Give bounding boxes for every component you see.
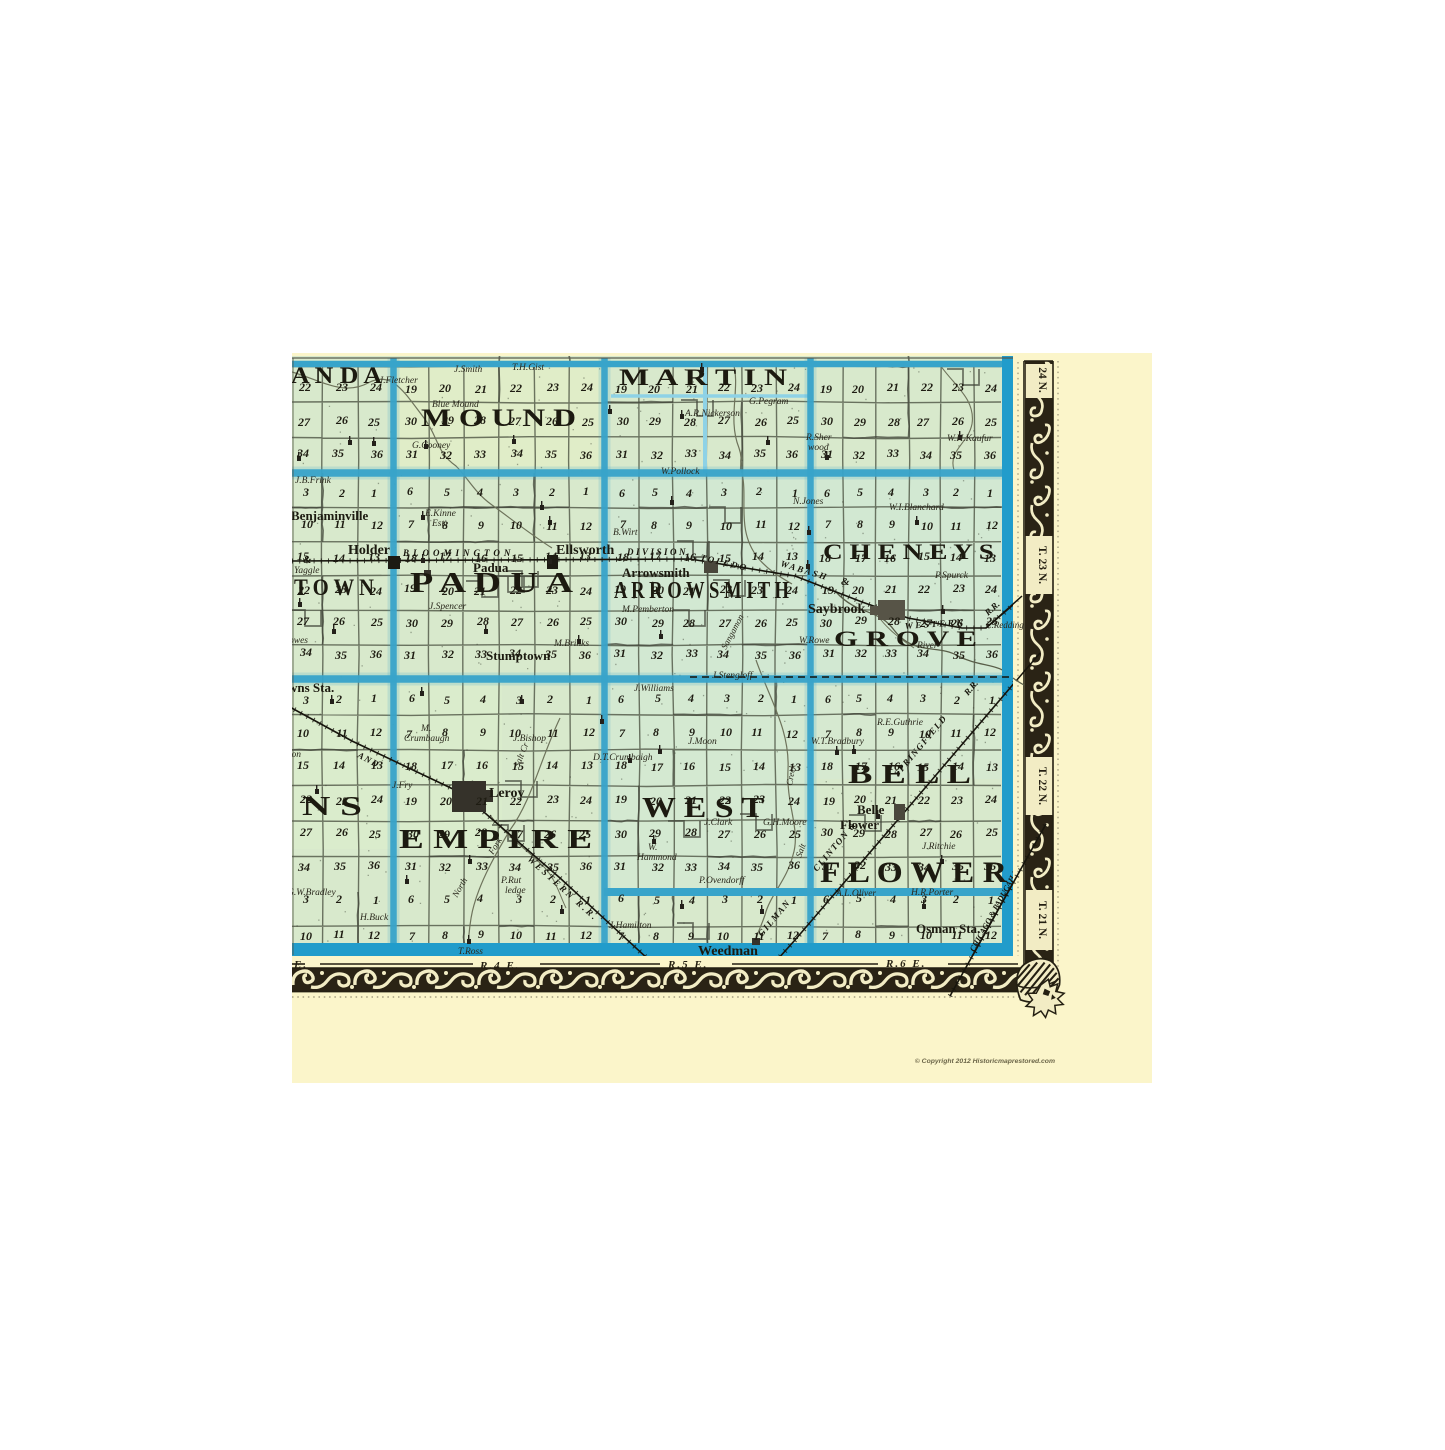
svg-text:M A R T I N: M A R T I N bbox=[619, 365, 788, 390]
svg-text:36: 36 bbox=[367, 858, 380, 872]
svg-text:30: 30 bbox=[819, 616, 832, 630]
svg-text:W.H.Kaufur: W.H.Kaufur bbox=[947, 433, 993, 444]
svg-text:22: 22 bbox=[920, 380, 933, 394]
svg-text:3: 3 bbox=[720, 485, 727, 499]
svg-text:28: 28 bbox=[884, 827, 897, 841]
svg-text:7: 7 bbox=[618, 929, 625, 943]
svg-text:J.Spencer: J.Spencer bbox=[429, 602, 466, 612]
svg-text:J.Smith: J.Smith bbox=[454, 365, 482, 375]
svg-text:&: & bbox=[841, 576, 850, 588]
svg-text:30: 30 bbox=[820, 414, 833, 428]
svg-text:3: 3 bbox=[919, 691, 926, 705]
svg-text:20: 20 bbox=[851, 583, 864, 597]
svg-text:9: 9 bbox=[889, 517, 895, 531]
svg-text:7: 7 bbox=[822, 929, 829, 943]
svg-text:2: 2 bbox=[756, 892, 763, 906]
svg-text:29: 29 bbox=[440, 616, 453, 630]
svg-text:P.Spurck: P.Spurck bbox=[934, 571, 969, 581]
svg-text:5: 5 bbox=[444, 485, 450, 499]
svg-text:3: 3 bbox=[302, 485, 309, 499]
svg-text:33: 33 bbox=[685, 646, 698, 660]
svg-text:31: 31 bbox=[615, 447, 628, 461]
svg-text:12: 12 bbox=[368, 928, 380, 942]
svg-text:26: 26 bbox=[754, 415, 767, 429]
svg-text:33: 33 bbox=[684, 446, 697, 460]
svg-text:11: 11 bbox=[336, 726, 347, 740]
svg-text:30: 30 bbox=[820, 825, 833, 839]
svg-text:DIVISION: DIVISION bbox=[626, 547, 688, 557]
svg-text:J.B.Frink: J.B.Frink bbox=[295, 476, 332, 486]
svg-text:33: 33 bbox=[886, 446, 899, 460]
svg-text:8: 8 bbox=[653, 725, 659, 739]
svg-text:25: 25 bbox=[984, 415, 997, 429]
svg-text:5: 5 bbox=[856, 691, 862, 705]
svg-text:21: 21 bbox=[884, 793, 897, 807]
svg-text:28: 28 bbox=[682, 616, 695, 630]
svg-text:25: 25 bbox=[985, 825, 998, 839]
svg-text:36: 36 bbox=[579, 448, 592, 462]
svg-text:23: 23 bbox=[950, 793, 963, 807]
svg-text:30: 30 bbox=[614, 614, 627, 628]
svg-text:36: 36 bbox=[370, 447, 383, 461]
svg-text:12: 12 bbox=[788, 519, 800, 533]
svg-text:11: 11 bbox=[547, 726, 558, 740]
svg-text:24: 24 bbox=[984, 381, 997, 395]
svg-text:9: 9 bbox=[688, 929, 694, 943]
svg-text:35: 35 bbox=[334, 648, 347, 662]
svg-text:Saybrook: Saybrook bbox=[808, 602, 866, 617]
svg-text:36: 36 bbox=[578, 648, 591, 662]
svg-text:16: 16 bbox=[683, 759, 695, 773]
svg-text:W.I.Blanchard: W.I.Blanchard bbox=[889, 503, 944, 513]
svg-text:34: 34 bbox=[717, 859, 730, 873]
svg-text:4: 4 bbox=[687, 691, 694, 705]
svg-text:26: 26 bbox=[335, 413, 348, 427]
svg-text:8: 8 bbox=[653, 929, 659, 943]
svg-text:T. 21 N.: T. 21 N. bbox=[1036, 901, 1048, 939]
svg-text:11: 11 bbox=[546, 519, 557, 533]
svg-text:36: 36 bbox=[785, 447, 798, 461]
svg-text:12: 12 bbox=[370, 725, 382, 739]
svg-text:5: 5 bbox=[652, 485, 658, 499]
svg-text:4: 4 bbox=[886, 691, 893, 705]
svg-text:J.Moon: J.Moon bbox=[688, 737, 717, 747]
svg-text:2: 2 bbox=[335, 892, 342, 906]
svg-text:34: 34 bbox=[510, 446, 523, 460]
svg-text:27: 27 bbox=[717, 827, 731, 841]
svg-text:12: 12 bbox=[583, 725, 595, 739]
svg-text:Belle: Belle bbox=[857, 802, 885, 817]
svg-text:36: 36 bbox=[985, 647, 998, 661]
svg-text:G.W.Bradley: G.W.Bradley bbox=[287, 888, 337, 898]
svg-text:17: 17 bbox=[651, 760, 664, 774]
svg-text:J.Fry: J.Fry bbox=[392, 781, 413, 791]
svg-text:26: 26 bbox=[546, 615, 559, 629]
svg-text:A R R O W S M I T H: A R R O W S M I T H bbox=[614, 578, 789, 604]
svg-text:© Copyright 2012 Historicmapre: © Copyright 2012 Historicmaprestored.com bbox=[915, 1057, 1055, 1065]
svg-text:5: 5 bbox=[444, 693, 450, 707]
svg-text:25: 25 bbox=[581, 415, 594, 429]
svg-text:M.Brinks: M.Brinks bbox=[553, 639, 589, 649]
svg-text:15: 15 bbox=[297, 758, 309, 772]
svg-text:33: 33 bbox=[473, 447, 486, 461]
svg-text:J.Stengloff: J.Stengloff bbox=[712, 670, 754, 681]
svg-text:R.E.Guthrie: R.E.Guthrie bbox=[876, 718, 923, 728]
svg-text:28: 28 bbox=[476, 614, 489, 628]
svg-text:17: 17 bbox=[441, 758, 454, 772]
svg-text:30: 30 bbox=[405, 616, 418, 630]
svg-text:4: 4 bbox=[476, 485, 483, 499]
svg-text:36: 36 bbox=[983, 448, 996, 462]
svg-text:34: 34 bbox=[297, 860, 310, 874]
svg-text:3: 3 bbox=[512, 485, 519, 499]
svg-text:10: 10 bbox=[510, 928, 522, 942]
svg-text:24: 24 bbox=[984, 582, 997, 596]
svg-text:32: 32 bbox=[438, 860, 451, 874]
svg-text:10: 10 bbox=[510, 518, 522, 532]
svg-text:10: 10 bbox=[297, 726, 309, 740]
svg-text:8: 8 bbox=[651, 518, 657, 532]
svg-text:J.Williams: J.Williams bbox=[634, 684, 674, 694]
svg-text:35: 35 bbox=[331, 446, 344, 460]
svg-text:H.R.Porter: H.R.Porter bbox=[910, 888, 954, 898]
svg-text:1: 1 bbox=[583, 484, 589, 498]
svg-text:24: 24 bbox=[580, 380, 593, 394]
svg-text:30: 30 bbox=[404, 414, 417, 428]
svg-text:33: 33 bbox=[684, 860, 697, 874]
svg-text:8: 8 bbox=[857, 517, 863, 531]
svg-text:30: 30 bbox=[616, 414, 629, 428]
svg-text:1: 1 bbox=[987, 486, 993, 500]
svg-text:14: 14 bbox=[753, 759, 765, 773]
svg-text:10: 10 bbox=[720, 725, 732, 739]
svg-text:&: & bbox=[303, 554, 312, 566]
svg-text:36: 36 bbox=[579, 859, 592, 873]
svg-text:20: 20 bbox=[439, 794, 452, 808]
svg-text:E M P I R E: E M P I R E bbox=[399, 824, 592, 854]
svg-text:19: 19 bbox=[823, 794, 835, 808]
svg-text:34: 34 bbox=[718, 448, 731, 462]
svg-text:12: 12 bbox=[986, 518, 998, 532]
svg-text:ledge: ledge bbox=[505, 886, 526, 896]
svg-text:27: 27 bbox=[919, 825, 933, 839]
svg-text:24: 24 bbox=[579, 584, 592, 598]
svg-text:T. 23 N.: T. 23 N. bbox=[1036, 546, 1048, 584]
svg-text:12: 12 bbox=[580, 519, 592, 533]
svg-text:25: 25 bbox=[579, 614, 592, 628]
svg-text:35: 35 bbox=[753, 446, 766, 460]
svg-text:35: 35 bbox=[333, 859, 346, 873]
svg-text:1: 1 bbox=[371, 486, 377, 500]
svg-text:9: 9 bbox=[478, 927, 484, 941]
svg-text:24: 24 bbox=[984, 792, 997, 806]
svg-text:7: 7 bbox=[825, 517, 832, 531]
svg-text:12: 12 bbox=[580, 928, 592, 942]
svg-text:7: 7 bbox=[409, 929, 416, 943]
svg-text:F L O W E R: F L O W E R bbox=[820, 856, 1007, 889]
svg-text:2: 2 bbox=[338, 486, 345, 500]
svg-text:6: 6 bbox=[618, 891, 624, 905]
svg-text:9: 9 bbox=[478, 518, 484, 532]
svg-text:27: 27 bbox=[296, 614, 310, 628]
svg-text:3: 3 bbox=[721, 892, 728, 906]
svg-text:26: 26 bbox=[949, 827, 962, 841]
svg-text:1: 1 bbox=[373, 893, 379, 907]
svg-text:9: 9 bbox=[480, 725, 486, 739]
svg-text:21: 21 bbox=[884, 582, 897, 596]
svg-text:P.Rut: P.Rut bbox=[500, 876, 522, 886]
svg-text:M.Pemberton: M.Pemberton bbox=[621, 605, 674, 615]
svg-text:W.: W. bbox=[648, 843, 657, 853]
svg-text:20: 20 bbox=[851, 382, 864, 396]
svg-text:35: 35 bbox=[750, 860, 763, 874]
svg-text:32: 32 bbox=[852, 448, 865, 462]
svg-text:Osman Sta.: Osman Sta. bbox=[916, 921, 980, 936]
svg-text:G.H.Moore: G.H.Moore bbox=[763, 818, 806, 828]
svg-text:6: 6 bbox=[407, 484, 413, 498]
svg-text:27: 27 bbox=[510, 615, 524, 629]
svg-text:J.Bishop: J.Bishop bbox=[513, 734, 546, 744]
svg-text:24: 24 bbox=[579, 793, 592, 807]
svg-text:21: 21 bbox=[474, 382, 487, 396]
svg-text:6: 6 bbox=[825, 692, 831, 706]
svg-text:11: 11 bbox=[751, 725, 762, 739]
svg-text:Hammond: Hammond bbox=[636, 853, 677, 863]
svg-text:B.Wirt: B.Wirt bbox=[613, 528, 638, 538]
svg-text:34: 34 bbox=[296, 446, 309, 460]
svg-text:9: 9 bbox=[889, 928, 895, 942]
svg-text:4: 4 bbox=[685, 486, 692, 500]
svg-text:G.Cooney: G.Cooney bbox=[412, 441, 451, 451]
svg-text:8: 8 bbox=[442, 928, 448, 942]
svg-text:1: 1 bbox=[586, 693, 592, 707]
svg-text:10: 10 bbox=[720, 519, 732, 533]
svg-text:32: 32 bbox=[650, 648, 663, 662]
svg-text:T. 22 N.: T. 22 N. bbox=[1036, 767, 1048, 805]
svg-text:W.Rowe: W.Rowe bbox=[799, 636, 830, 646]
svg-text:R.Sher: R.Sher bbox=[805, 433, 832, 443]
svg-text:E.Kinne: E.Kinne bbox=[424, 509, 456, 519]
svg-text:3: 3 bbox=[515, 693, 522, 707]
svg-text:14: 14 bbox=[333, 758, 345, 772]
svg-text:10: 10 bbox=[717, 929, 729, 943]
svg-text:H.Buck: H.Buck bbox=[359, 913, 389, 923]
svg-text:23: 23 bbox=[952, 581, 965, 595]
svg-text:36: 36 bbox=[369, 647, 382, 661]
svg-text:7: 7 bbox=[619, 726, 626, 740]
svg-text:2: 2 bbox=[757, 691, 764, 705]
svg-text:14: 14 bbox=[752, 549, 764, 563]
svg-text:N.Jones: N.Jones bbox=[792, 497, 824, 507]
svg-text:31: 31 bbox=[613, 859, 626, 873]
svg-text:34: 34 bbox=[299, 645, 312, 659]
svg-text:18: 18 bbox=[405, 759, 417, 773]
svg-text:32: 32 bbox=[650, 448, 663, 462]
svg-text:15: 15 bbox=[719, 760, 731, 774]
svg-text:24: 24 bbox=[787, 380, 800, 394]
svg-text:26: 26 bbox=[335, 825, 348, 839]
svg-text:21: 21 bbox=[475, 794, 488, 808]
svg-text:18: 18 bbox=[821, 759, 833, 773]
svg-text:Stumptown: Stumptown bbox=[486, 648, 551, 663]
svg-text:23: 23 bbox=[546, 380, 559, 394]
svg-text:25: 25 bbox=[785, 615, 798, 629]
svg-text:4: 4 bbox=[889, 892, 896, 906]
svg-text:6: 6 bbox=[408, 892, 414, 906]
svg-text:34: 34 bbox=[508, 860, 521, 874]
svg-text:14: 14 bbox=[546, 758, 558, 772]
svg-text:7: 7 bbox=[408, 517, 415, 531]
svg-text:26: 26 bbox=[951, 414, 964, 428]
svg-text:9: 9 bbox=[686, 518, 692, 532]
svg-text:T.H.Gist: T.H.Gist bbox=[512, 363, 544, 373]
svg-text:2: 2 bbox=[335, 692, 342, 706]
svg-text:T.Ross: T.Ross bbox=[458, 947, 483, 957]
svg-text:Holder: Holder bbox=[348, 543, 390, 558]
svg-text:A.R.Nickerson: A.R.Nickerson bbox=[684, 409, 740, 419]
svg-text:wood: wood bbox=[808, 443, 829, 453]
svg-text:6: 6 bbox=[619, 486, 625, 500]
svg-text:33: 33 bbox=[475, 859, 488, 873]
svg-text:2: 2 bbox=[549, 892, 556, 906]
svg-text:11: 11 bbox=[545, 929, 556, 943]
svg-text:10: 10 bbox=[300, 929, 312, 943]
svg-text:19: 19 bbox=[615, 792, 627, 806]
svg-text:M O U N D: M O U N D bbox=[421, 405, 576, 432]
svg-text:3: 3 bbox=[922, 485, 929, 499]
svg-text:5: 5 bbox=[654, 893, 660, 907]
svg-text:30: 30 bbox=[614, 827, 627, 841]
svg-text:29: 29 bbox=[648, 826, 661, 840]
svg-text:Ellsworth: Ellsworth bbox=[556, 543, 615, 558]
svg-text:6: 6 bbox=[409, 691, 415, 705]
svg-text:2: 2 bbox=[952, 485, 959, 499]
svg-text:16: 16 bbox=[476, 758, 488, 772]
svg-text:G.Pegram: G.Pegram bbox=[749, 397, 788, 407]
svg-text:22: 22 bbox=[917, 793, 930, 807]
svg-text:28: 28 bbox=[684, 825, 697, 839]
svg-text:12: 12 bbox=[984, 725, 996, 739]
svg-text:27: 27 bbox=[299, 825, 313, 839]
svg-text:2: 2 bbox=[953, 693, 960, 707]
svg-text:11: 11 bbox=[950, 726, 961, 740]
svg-text:12: 12 bbox=[787, 928, 799, 942]
svg-text:19: 19 bbox=[820, 382, 832, 396]
svg-text:11: 11 bbox=[950, 519, 961, 533]
svg-text:13: 13 bbox=[581, 758, 593, 772]
svg-text:26: 26 bbox=[753, 827, 766, 841]
svg-text:28: 28 bbox=[887, 415, 900, 429]
svg-text:6: 6 bbox=[824, 486, 830, 500]
svg-text:23: 23 bbox=[546, 792, 559, 806]
svg-text:W.Pollock: W.Pollock bbox=[661, 467, 700, 477]
svg-text:25: 25 bbox=[788, 827, 801, 841]
svg-text:Padua: Padua bbox=[473, 560, 509, 575]
svg-text:29: 29 bbox=[648, 414, 661, 428]
svg-text:29: 29 bbox=[651, 616, 664, 630]
svg-text:24: 24 bbox=[370, 792, 383, 806]
svg-text:1: 1 bbox=[989, 693, 995, 707]
svg-text:12: 12 bbox=[786, 727, 798, 741]
svg-text:A N D A: A N D A bbox=[291, 363, 382, 388]
svg-text:6: 6 bbox=[823, 892, 829, 906]
svg-text:11: 11 bbox=[755, 517, 766, 531]
svg-text:19: 19 bbox=[405, 794, 417, 808]
svg-text:10: 10 bbox=[921, 519, 933, 533]
svg-text:Arrowsmith: Arrowsmith bbox=[622, 565, 690, 580]
svg-text:26: 26 bbox=[332, 614, 345, 628]
svg-text:wns Sta.: wns Sta. bbox=[288, 680, 334, 695]
svg-text:11: 11 bbox=[333, 927, 344, 941]
svg-text:13: 13 bbox=[986, 760, 998, 774]
svg-text:4: 4 bbox=[479, 692, 486, 706]
svg-text:W.T.Bradbury: W.T.Bradbury bbox=[811, 737, 865, 747]
svg-text:M.: M. bbox=[420, 724, 431, 734]
svg-text:Crumbaugh: Crumbaugh bbox=[404, 734, 450, 744]
svg-text:J.Fletcher: J.Fletcher bbox=[379, 376, 418, 386]
svg-text:24 N.: 24 N. bbox=[1036, 367, 1048, 393]
svg-text:Est.: Est. bbox=[431, 519, 447, 529]
svg-text:1: 1 bbox=[791, 692, 797, 706]
svg-text:2: 2 bbox=[546, 692, 553, 706]
svg-text:8: 8 bbox=[855, 927, 861, 941]
svg-text:4: 4 bbox=[476, 891, 483, 905]
svg-text:14: 14 bbox=[333, 551, 345, 565]
svg-text:27: 27 bbox=[916, 415, 930, 429]
svg-text:6: 6 bbox=[618, 692, 624, 706]
svg-text:22: 22 bbox=[917, 582, 930, 596]
svg-text:35: 35 bbox=[544, 447, 557, 461]
svg-text:A.L.Oliver: A.L.Oliver bbox=[835, 889, 876, 899]
svg-text:P.Ovendorff: P.Ovendorff bbox=[698, 875, 746, 886]
svg-text:3: 3 bbox=[723, 691, 730, 705]
svg-text:35: 35 bbox=[754, 648, 767, 662]
svg-text:J.Hamilton: J.Hamilton bbox=[609, 921, 652, 931]
svg-text:31: 31 bbox=[404, 859, 417, 873]
svg-text:5: 5 bbox=[857, 485, 863, 499]
svg-text:23: 23 bbox=[951, 380, 964, 394]
svg-text:19: 19 bbox=[822, 583, 834, 597]
svg-text:T O W N: T O W N bbox=[294, 575, 374, 600]
svg-text:N S: N S bbox=[302, 791, 362, 821]
svg-text:24: 24 bbox=[787, 794, 800, 808]
svg-text:27: 27 bbox=[297, 415, 311, 429]
svg-text:W E S T: W E S T bbox=[642, 792, 764, 824]
svg-text:20: 20 bbox=[438, 381, 451, 395]
svg-text:26: 26 bbox=[754, 616, 767, 630]
svg-text:4: 4 bbox=[887, 485, 894, 499]
svg-text:22: 22 bbox=[509, 381, 522, 395]
svg-text:J.Ritchie: J.Ritchie bbox=[922, 842, 956, 852]
svg-text:1: 1 bbox=[371, 691, 377, 705]
svg-text:32: 32 bbox=[441, 647, 454, 661]
svg-text:1: 1 bbox=[791, 893, 797, 907]
svg-text:Leroy: Leroy bbox=[489, 786, 525, 801]
svg-text:29: 29 bbox=[853, 415, 866, 429]
svg-text:25: 25 bbox=[368, 827, 381, 841]
svg-text:BLOOMINGTON: BLOOMINGTON bbox=[402, 548, 514, 558]
svg-text:2: 2 bbox=[755, 484, 762, 498]
svg-text:25: 25 bbox=[786, 413, 799, 427]
svg-text:2: 2 bbox=[548, 485, 555, 499]
svg-text:31: 31 bbox=[613, 646, 626, 660]
svg-text:25: 25 bbox=[370, 615, 383, 629]
svg-text:25: 25 bbox=[367, 415, 380, 429]
svg-text:4: 4 bbox=[688, 893, 695, 907]
svg-text:C H E N E Y S: C H E N E Y S bbox=[823, 539, 994, 564]
svg-text:31: 31 bbox=[403, 648, 416, 662]
svg-text:12: 12 bbox=[371, 518, 383, 532]
